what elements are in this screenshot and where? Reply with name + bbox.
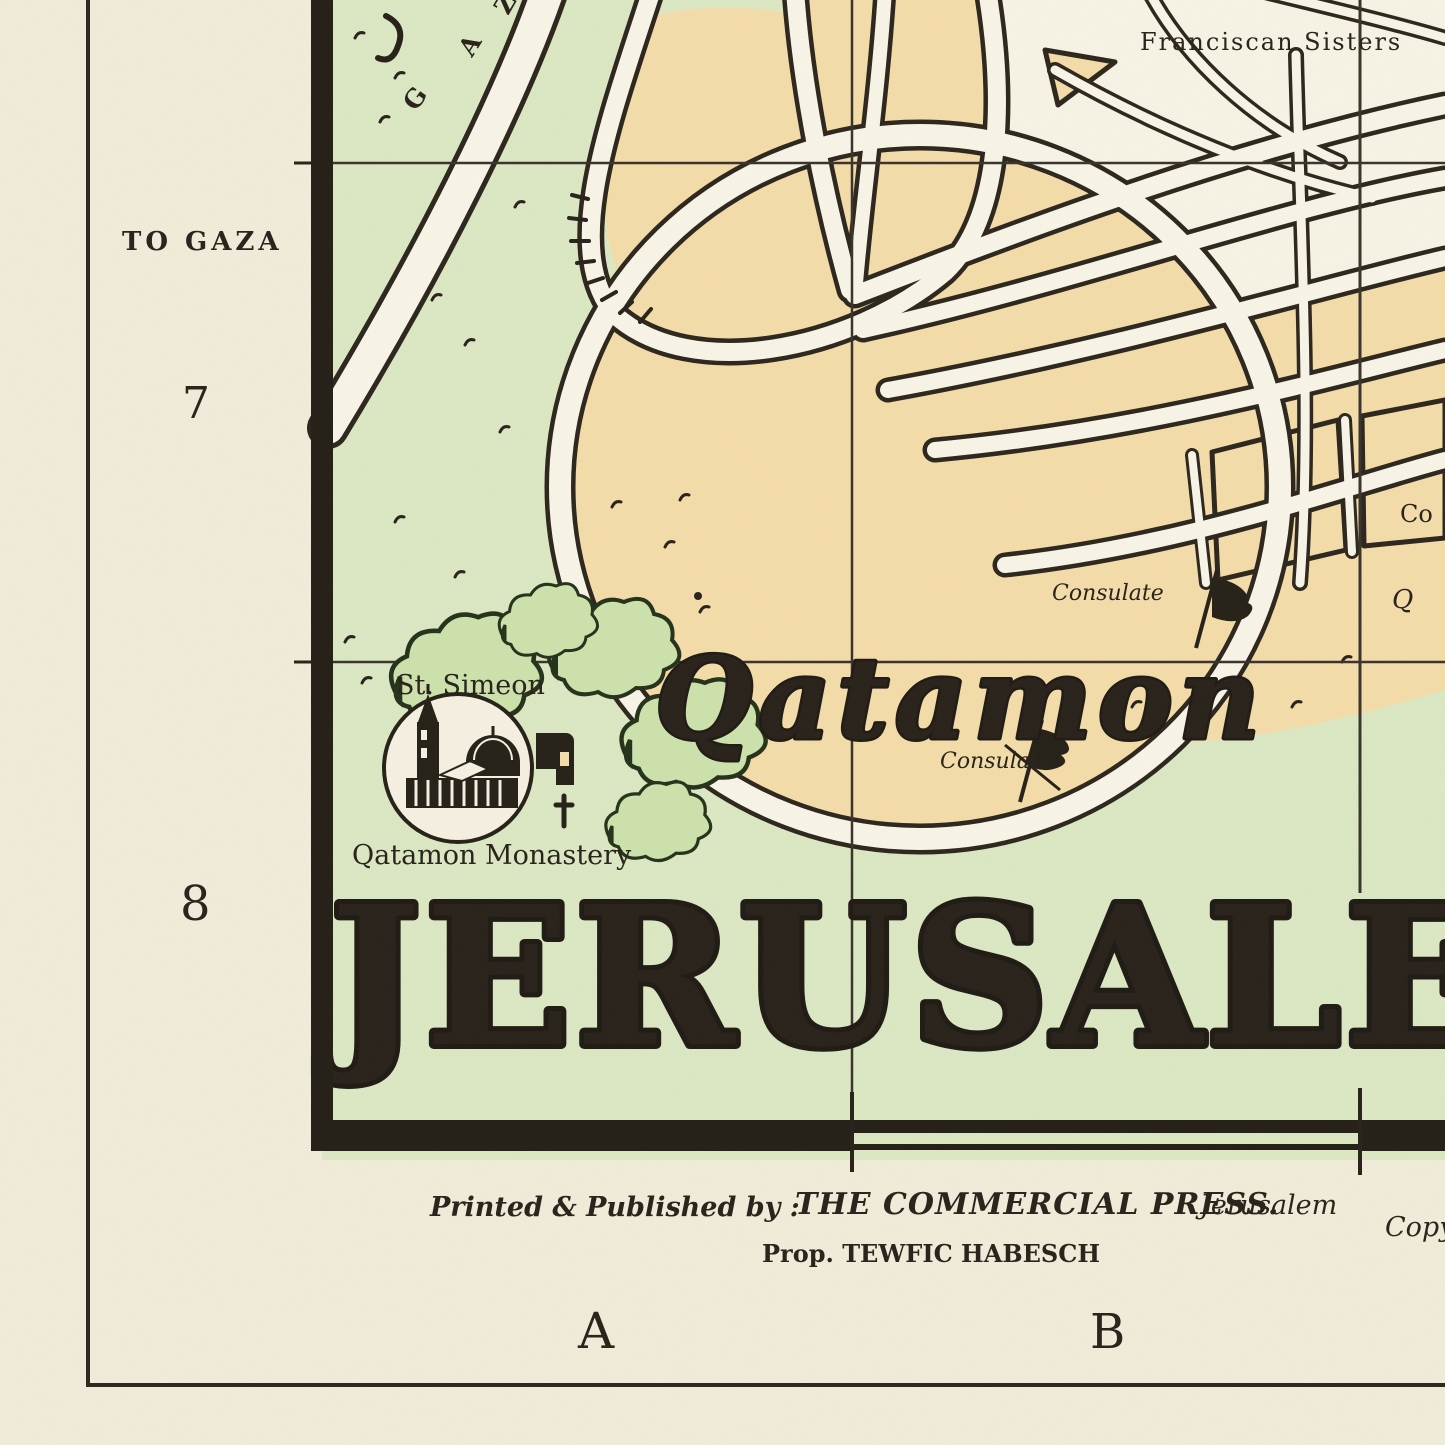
map-sheet: Franciscan Sisters Qatamon Consulate Con… xyxy=(0,0,1445,1445)
paper-texture-overlay xyxy=(0,0,1445,1445)
jerusalem-map-canvas: Franciscan Sisters Qatamon Consulate Con… xyxy=(0,0,1445,1445)
